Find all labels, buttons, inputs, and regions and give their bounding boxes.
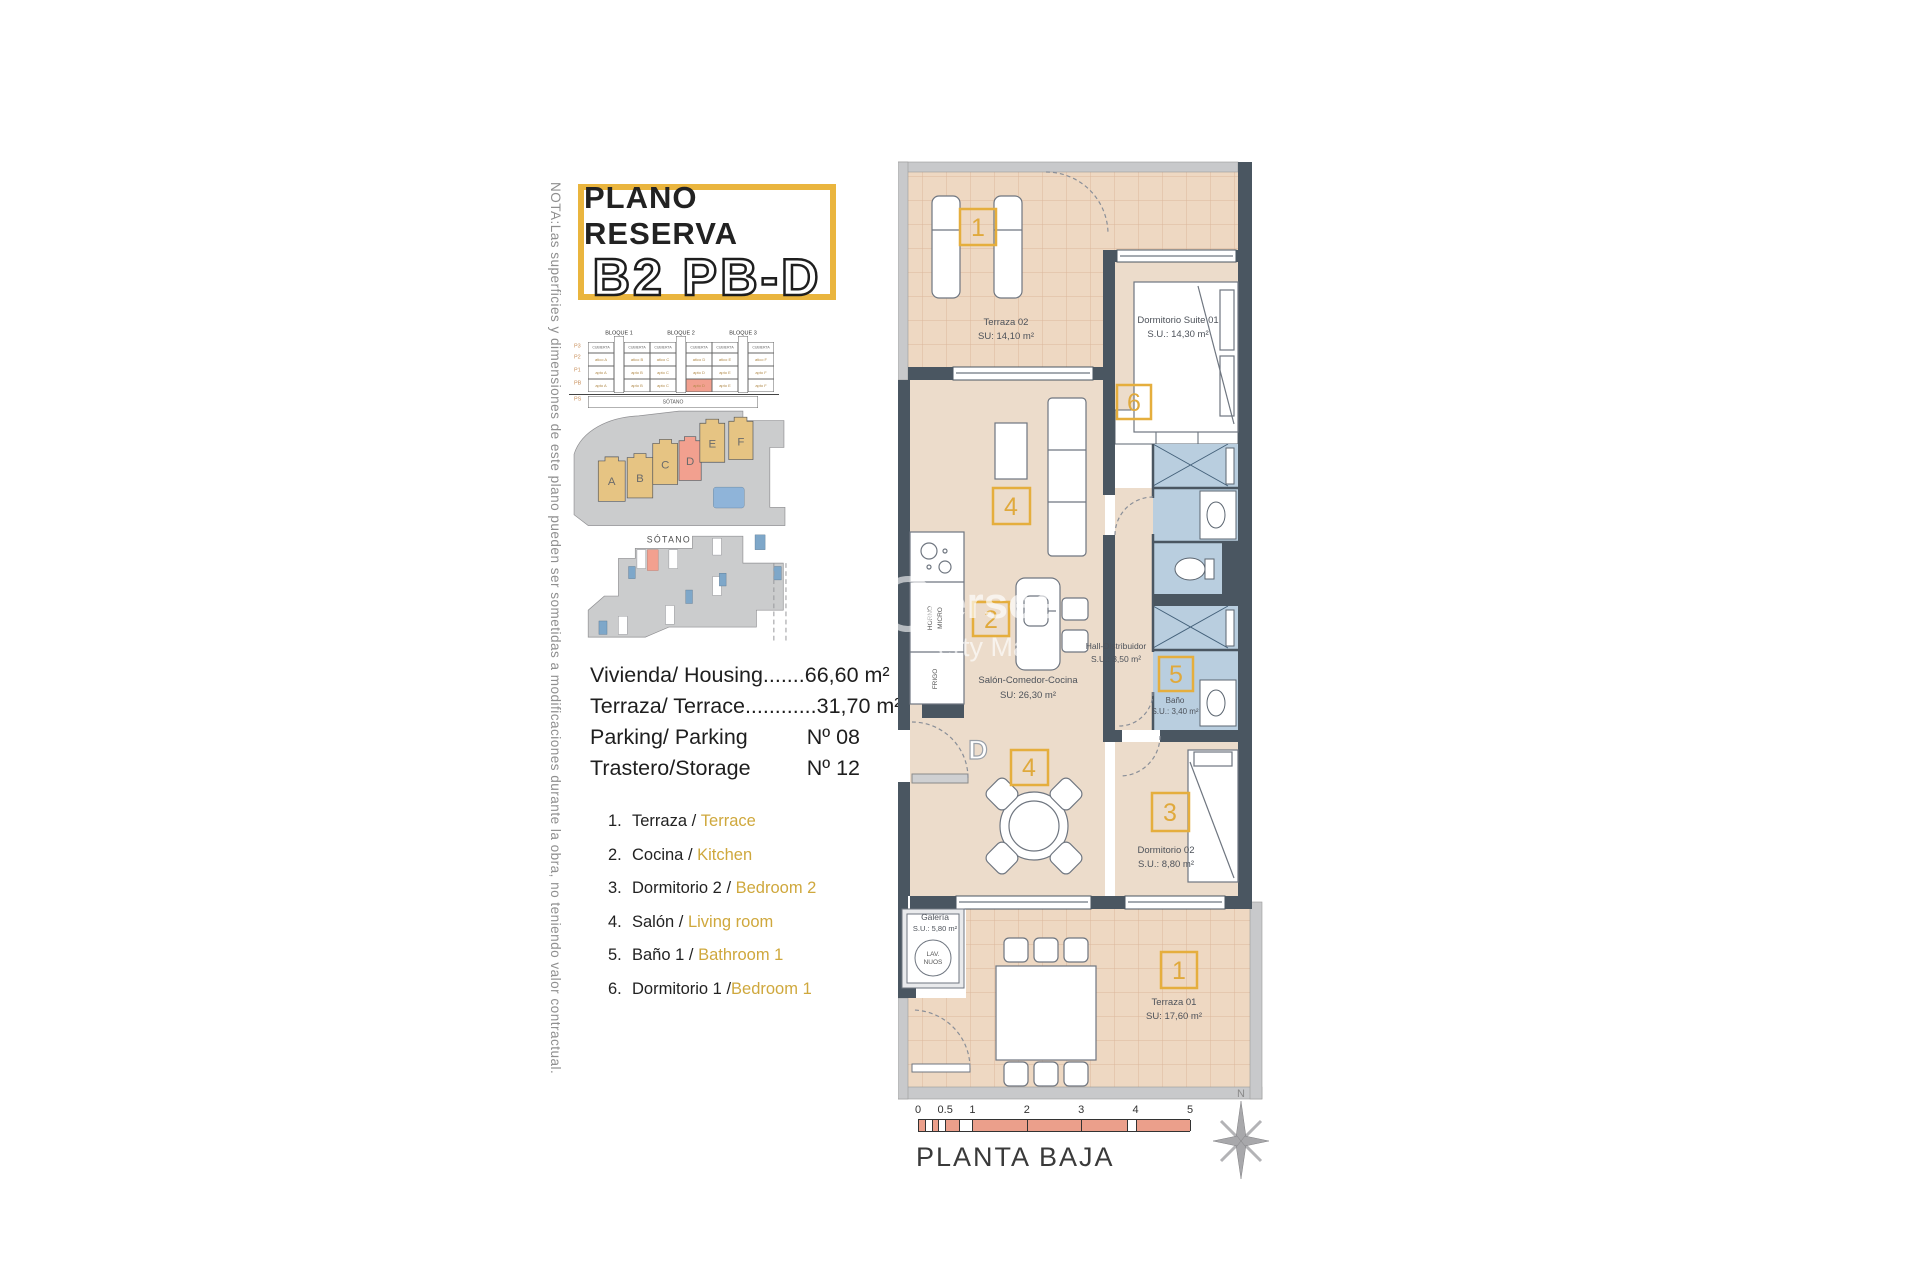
- table-unit-cell: apto A: [588, 366, 614, 379]
- svg-text:1: 1: [971, 214, 985, 242]
- kitchen-island: [1016, 578, 1060, 670]
- scale-segment-6: [973, 1120, 1027, 1131]
- table-unit-cell: apto B: [624, 379, 650, 392]
- summary-value: 31,70 m²: [817, 691, 902, 722]
- table-unit-cell: apto E: [712, 379, 738, 392]
- table-unit-cell: apto D: [686, 366, 712, 379]
- shower-panel: [1226, 448, 1234, 484]
- svg-text:B: B: [636, 473, 644, 485]
- svg-text:Salón-Comedor-Cocina: Salón-Comedor-Cocina: [978, 675, 1078, 686]
- floor-name: PLANTA BAJA: [916, 1142, 1115, 1173]
- summary-label: Trastero/Storage: [590, 753, 751, 784]
- coffee-table: [995, 423, 1027, 479]
- stool: [1062, 598, 1088, 620]
- shower-panel-2: [1226, 610, 1234, 646]
- svg-text:Galería: Galería: [921, 912, 949, 922]
- legend-spanish: Cocina /: [632, 846, 697, 864]
- legend-item-4: 5.Baño 1 / Bathroom 1: [608, 946, 816, 965]
- svg-text:HORNO: HORNO: [927, 606, 934, 630]
- legend-spanish: Baño 1 /: [632, 946, 698, 964]
- basement-ground: [588, 536, 783, 637]
- table-header-cell: CUBIERTA: [748, 342, 774, 353]
- legend-item-5: 6.Dormitorio 1 /Bedroom 1: [608, 980, 816, 999]
- scale-tick-4: 4: [1133, 1104, 1139, 1116]
- svg-text:Terraza 02: Terraza 02: [984, 317, 1029, 328]
- legend-english: Living room: [688, 913, 773, 931]
- summary-row-2: Parking/ ParkingNº 08: [590, 722, 860, 753]
- legend-number: 6.: [608, 980, 632, 999]
- compass-star: [1213, 1101, 1269, 1179]
- scale-segment-10: [1137, 1120, 1191, 1131]
- svg-text:1: 1: [1172, 957, 1186, 985]
- svg-text:FRIGO: FRIGO: [932, 669, 939, 690]
- svg-text:Baño: Baño: [1166, 696, 1185, 705]
- legend-spanish: Salón /: [632, 913, 688, 931]
- svg-text:S.U.: 3,50 m²: S.U.: 3,50 m²: [1091, 654, 1141, 664]
- basement-label: SÓTANO: [647, 534, 691, 544]
- table-unit-cell: atico D: [686, 353, 712, 366]
- site-pool: [713, 487, 744, 508]
- table-unit-cell: apto A: [588, 379, 614, 392]
- legend-english: Bedroom 1: [731, 980, 812, 998]
- svg-text:4: 4: [1004, 493, 1018, 521]
- scale-segment-7: [1028, 1120, 1082, 1131]
- table-header-cell: CUBIERTA: [712, 342, 738, 353]
- row-label-P2: P2: [574, 354, 581, 360]
- legend-number: 4.: [608, 913, 632, 932]
- svg-text:4: 4: [1022, 754, 1036, 782]
- legend-spanish: Terraza /: [632, 812, 701, 830]
- table-unit-cell: atico B: [624, 353, 650, 366]
- legend-item-2: 3.Dormitorio 2 / Bedroom 2: [608, 879, 816, 898]
- summary-value: Nº 08: [807, 722, 860, 753]
- compass-rose: N: [1205, 1085, 1277, 1181]
- scale-bar-track: [918, 1119, 1190, 1132]
- scale-tick-0.5: 0.5: [938, 1104, 953, 1116]
- table-unit-cell: apto C: [650, 366, 676, 379]
- scale-tick-5: 5: [1187, 1104, 1193, 1116]
- table-unit-cell: apto B: [624, 366, 650, 379]
- svg-text:C: C: [661, 459, 669, 471]
- scale-segment-4: [946, 1120, 960, 1131]
- terrace-door-leaf: [912, 1064, 970, 1072]
- row-label-PB: PB: [574, 380, 581, 386]
- table-unit-cell: atico E: [712, 353, 738, 366]
- legend-number: 3.: [608, 879, 632, 898]
- plan-unit-code: B2 PB-D: [592, 252, 821, 304]
- table-unit-cell: atico C: [650, 353, 676, 366]
- legend-item-0: 1.Terraza / Terrace: [608, 812, 816, 831]
- scale-tick-2: 2: [1024, 1104, 1030, 1116]
- svg-text:2: 2: [984, 606, 998, 634]
- legend-item-1: 2.Cocina / Kitchen: [608, 846, 816, 865]
- table-header-cell: CUBIERTA: [624, 342, 650, 353]
- svg-text:Dormitorio 02: Dormitorio 02: [1137, 845, 1194, 856]
- table-unit-cell: atico A: [588, 353, 614, 366]
- table-header-cell: CUBIERTA: [650, 342, 676, 353]
- scale-bar: 00.512345: [918, 1104, 1190, 1136]
- svg-text:5: 5: [1169, 661, 1183, 689]
- washing-machine-icon: [915, 940, 951, 976]
- scale-segment-8: [1082, 1120, 1128, 1131]
- table-header-cell: CUBIERTA: [588, 342, 614, 353]
- site-plan: A B C D E F: [568, 407, 790, 531]
- svg-text:S.U.: 3,40 m²: S.U.: 3,40 m²: [1151, 707, 1198, 716]
- stair-tower: [614, 336, 624, 393]
- scale-segment-0: [919, 1120, 926, 1131]
- svg-text:SU: 14,10 m²: SU: 14,10 m²: [978, 331, 1034, 342]
- basement-plan: SÓTANO: [568, 526, 790, 648]
- svg-text:3: 3: [1163, 799, 1177, 827]
- summary-value: 66,60 m²: [805, 660, 890, 691]
- svg-text:S.U.: 14,30 m²: S.U.: 14,30 m²: [1147, 329, 1208, 340]
- entrance-letter: D: [968, 735, 988, 765]
- sun-lounger: [932, 196, 960, 298]
- svg-text:Dormitorio Suite 01: Dormitorio Suite 01: [1137, 315, 1218, 326]
- table-unit-cell: atico F: [748, 353, 774, 366]
- table-unit-cell: apto E: [712, 366, 738, 379]
- row-label-P1: P1: [574, 367, 581, 373]
- scale-segment-3: [939, 1120, 946, 1131]
- room-legend: 1.Terraza / Terrace2.Cocina / Kitchen3.D…: [608, 812, 816, 1013]
- legend-number: 5.: [608, 946, 632, 965]
- toilet-icon: [1175, 558, 1205, 580]
- row-label-P3: P3: [574, 343, 581, 349]
- legend-english: Terrace: [701, 812, 756, 830]
- entrance-door-leaf: [912, 774, 968, 783]
- table-unit-cell: apto F: [748, 379, 774, 392]
- row-label-PS: PS: [574, 396, 581, 402]
- scale-tick-3: 3: [1078, 1104, 1084, 1116]
- legend-spanish: Dormitorio 1 /: [632, 980, 731, 998]
- scale-segment-1: [926, 1120, 933, 1131]
- floor-plan: LAV. NUOS D HORNO MICRO FRIGO 1: [898, 152, 1288, 1102]
- summary-label: Parking/ Parking: [590, 722, 748, 753]
- area-summary: Vivienda/ Housing.......66,60 m²Terraza/…: [590, 660, 860, 784]
- svg-text:LAV.: LAV.: [926, 951, 939, 958]
- compass-north-label: N: [1237, 1088, 1245, 1100]
- legend-number: 2.: [608, 846, 632, 865]
- svg-text:S.U.: 5,80 m²: S.U.: 5,80 m²: [913, 924, 958, 933]
- legend-item-3: 4.Salón / Living room: [608, 913, 816, 932]
- sofa: [1048, 398, 1086, 556]
- svg-text:S.U.: 8,80 m²: S.U.: 8,80 m²: [1138, 859, 1194, 870]
- summary-value: Nº 12: [807, 753, 860, 784]
- summary-row-3: Trastero/StorageNº 12: [590, 753, 860, 784]
- scale-tick-1: 1: [969, 1104, 975, 1116]
- scale-segment-9: [1128, 1120, 1136, 1131]
- stair-tower: [738, 336, 748, 393]
- stool-2: [1062, 630, 1088, 652]
- stair-tower: [676, 336, 686, 393]
- table-unit-cell: apto C: [650, 379, 676, 392]
- svg-text:SU: 26,30 m²: SU: 26,30 m²: [1000, 690, 1056, 701]
- bed-2: [1188, 750, 1238, 882]
- ground-line: [569, 394, 779, 395]
- summary-row-1: Terraza/ Terrace............31,70 m²: [590, 691, 860, 722]
- svg-text:Terraza 01: Terraza 01: [1152, 997, 1197, 1008]
- svg-text:A: A: [608, 476, 616, 488]
- svg-text:D: D: [686, 456, 694, 468]
- legend-english: Bathroom 1: [698, 946, 783, 964]
- legend-english: Bedroom 2: [736, 879, 817, 897]
- scale-tick-0: 0: [915, 1104, 921, 1116]
- svg-text:6: 6: [1127, 389, 1141, 417]
- svg-text:SU: 17,60 m²: SU: 17,60 m²: [1146, 1011, 1202, 1022]
- table-unit-cell: apto F: [748, 366, 774, 379]
- summary-row-0: Vivienda/ Housing.......66,60 m²: [590, 660, 860, 691]
- legend-spanish: Dormitorio 2 /: [632, 879, 736, 897]
- summary-label: Vivienda/ Housing.......: [590, 660, 805, 691]
- svg-text:F: F: [737, 436, 744, 448]
- summary-label: Terraza/ Terrace............: [590, 691, 817, 722]
- sun-lounger-2: [994, 196, 1022, 298]
- svg-text:MICRO: MICRO: [937, 607, 944, 629]
- terrace-table: [996, 966, 1096, 1060]
- table-header-cell: CUBIERTA: [686, 342, 712, 353]
- legend-english: Kitchen: [697, 846, 752, 864]
- plan-title: PLANO RESERVA: [584, 180, 830, 252]
- table-unit-cell: apto D: [686, 379, 712, 392]
- svg-text:Hall-Distribuidor: Hall-Distribuidor: [1086, 641, 1147, 651]
- svg-text:NUOS: NUOS: [924, 959, 943, 966]
- scale-segment-2: [933, 1120, 940, 1131]
- basement-highlighted-stall: [647, 550, 658, 571]
- plan-title-box: PLANO RESERVA B2 PB-D: [578, 184, 836, 300]
- scale-segment-5: [960, 1120, 974, 1131]
- svg-text:E: E: [708, 438, 716, 450]
- disclaimer-vertical-note: NOTA:Las superficies y dimensiones de es…: [548, 182, 563, 1092]
- legend-number: 1.: [608, 812, 632, 831]
